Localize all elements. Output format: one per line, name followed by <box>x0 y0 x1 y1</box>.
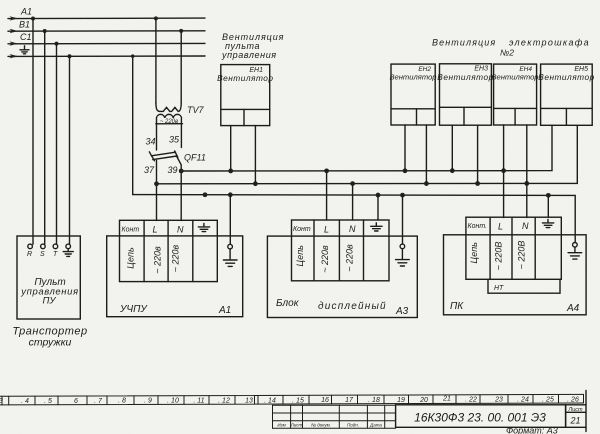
svg-text:Вентилятор: Вентилятор <box>437 72 493 82</box>
svg-text:. 15: . 15 <box>292 397 304 404</box>
svg-text:34: 34 <box>146 137 156 147</box>
svg-text:L: L <box>153 225 158 235</box>
svg-text:QF11: QF11 <box>184 153 206 163</box>
svg-text:16К30Ф3 23. 00. 001 Э3: 16К30Ф3 23. 00. 001 Э3 <box>414 411 546 425</box>
svg-text:Вентиляция: Вентиляция <box>432 38 496 48</box>
svg-text:Вентилятор: Вентилятор <box>217 73 273 83</box>
svg-text:. 24: . 24 <box>517 397 529 404</box>
svg-text:13: 13 <box>245 398 253 405</box>
svg-text:35: 35 <box>169 135 180 145</box>
svg-text:TV7: TV7 <box>187 105 205 115</box>
svg-text:УЧПУ: УЧПУ <box>119 304 148 315</box>
svg-text:. 10: . 10 <box>167 398 179 405</box>
svg-text:~ 220в: ~ 220в <box>160 119 178 125</box>
svg-text:16: 16 <box>321 397 329 404</box>
svg-text:А4: А4 <box>566 303 580 314</box>
svg-text:№2: №2 <box>500 48 514 58</box>
svg-text:N: N <box>522 221 529 231</box>
svg-text:№ докум.: № докум. <box>311 423 331 428</box>
svg-text:3: 3 <box>0 398 3 405</box>
svg-text:17: 17 <box>345 397 354 404</box>
svg-text:ПК: ПК <box>450 301 464 312</box>
svg-text:Цепь: Цепь <box>126 247 136 269</box>
svg-text:. 22: . 22 <box>465 397 477 404</box>
svg-text:T: T <box>53 251 58 258</box>
svg-text:~ 220В: ~ 220В <box>517 241 527 270</box>
svg-text:L: L <box>324 225 329 235</box>
svg-text:L: L <box>498 222 503 232</box>
svg-text:Вентилятор: Вентилятор <box>538 72 594 82</box>
svg-text:Цепь: Цепь <box>295 245 305 267</box>
svg-text:19: 19 <box>397 397 405 404</box>
svg-text:Конт.: Конт. <box>468 223 488 230</box>
svg-text:. 9: . 9 <box>144 398 152 405</box>
svg-text:39: 39 <box>168 165 178 175</box>
svg-text:R: R <box>27 251 32 258</box>
svg-text:Дата: Дата <box>369 423 382 428</box>
svg-text:Вентилятор: Вентилятор <box>389 73 436 82</box>
svg-text:. 18: . 18 <box>368 397 380 404</box>
svg-text:20: 20 <box>419 397 428 404</box>
svg-text:S: S <box>40 251 45 258</box>
svg-text:. 11: . 11 <box>193 398 204 405</box>
svg-text:~ 220В: ~ 220В <box>494 242 504 271</box>
svg-text:. 25: . 25 <box>542 397 554 404</box>
svg-text:стружки: стружки <box>29 337 72 349</box>
svg-text:N: N <box>349 224 356 234</box>
svg-text:. 5: . 5 <box>44 398 52 405</box>
svg-text:НТ: НТ <box>494 285 504 292</box>
svg-text:С1: С1 <box>20 32 32 42</box>
svg-text:А1: А1 <box>218 305 231 316</box>
svg-text:6: 6 <box>74 398 78 405</box>
svg-text:N: N <box>177 225 184 235</box>
svg-text:Конт: Конт <box>122 227 140 234</box>
svg-text:~ 220в: ~ 220в <box>320 245 330 273</box>
svg-text:дисплейный: дисплейный <box>318 301 387 312</box>
svg-text:А3: А3 <box>395 306 409 317</box>
svg-text:21: 21 <box>569 416 580 426</box>
svg-text:Цепь: Цепь <box>469 242 479 264</box>
svg-text:21: 21 <box>442 396 451 403</box>
svg-text:. 14: . 14 <box>264 397 276 404</box>
svg-text:В1: В1 <box>19 20 30 30</box>
svg-text:Конт: Конт <box>293 226 311 233</box>
svg-text:Лист: Лист <box>290 423 303 428</box>
svg-text:~ 220в: ~ 220в <box>171 244 181 272</box>
svg-text:Блок: Блок <box>276 298 300 309</box>
svg-text:~ 220в: ~ 220в <box>153 246 163 274</box>
svg-text:. 12: . 12 <box>218 398 230 405</box>
svg-text:. 26: . 26 <box>567 396 579 403</box>
svg-text:электрошкафа: электрошкафа <box>509 38 590 48</box>
svg-text:Вентилятор: Вентилятор <box>491 73 538 82</box>
svg-text:Подп.: Подп. <box>347 423 359 428</box>
svg-text:Лист: Лист <box>567 407 583 413</box>
svg-text:управления: управления <box>221 50 277 60</box>
svg-text:. 7: . 7 <box>94 398 103 405</box>
svg-text:37: 37 <box>144 165 155 175</box>
svg-text:ПУ: ПУ <box>43 296 57 307</box>
svg-text:Изм: Изм <box>277 423 285 428</box>
svg-text:Формат: А3: Формат: А3 <box>506 426 558 434</box>
svg-text:23: 23 <box>494 397 503 404</box>
svg-text:А1: А1 <box>20 7 32 17</box>
svg-text:. 8: . 8 <box>118 398 126 405</box>
svg-text:. 4: . 4 <box>21 398 29 405</box>
svg-text:~ 220в: ~ 220в <box>345 244 355 272</box>
